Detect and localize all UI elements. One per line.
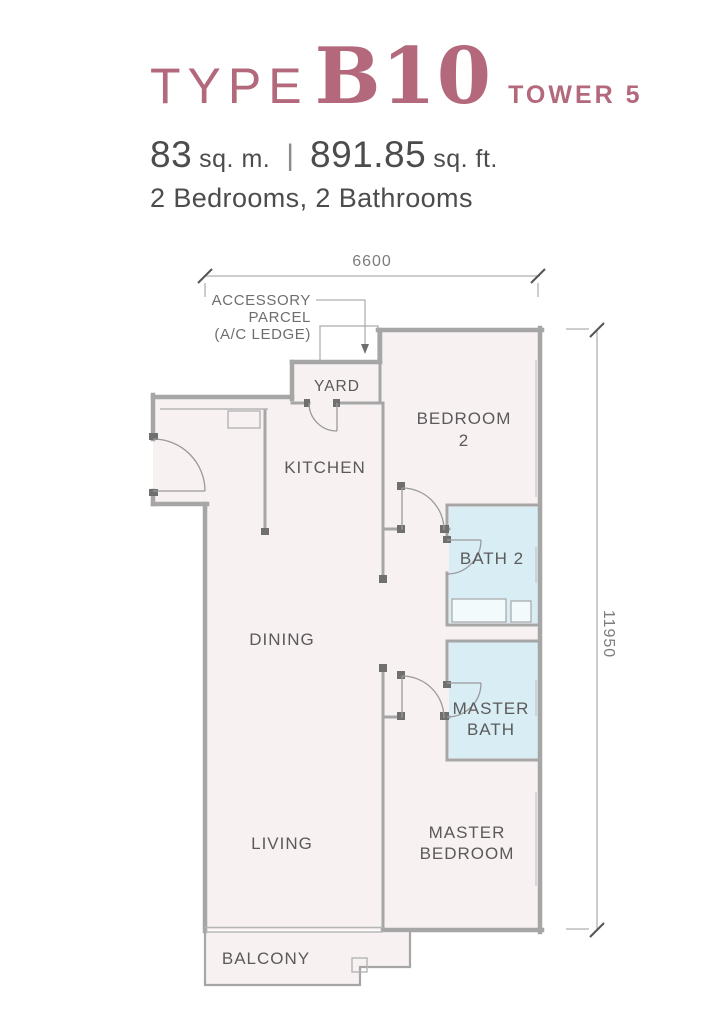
label-balcony: BALCONY xyxy=(222,949,310,968)
area-sqft-unit: sq. ft. xyxy=(433,145,498,173)
label-master-bedroom-line1: MASTER xyxy=(429,823,506,842)
bedroom-bathroom-config: 2 Bedrooms, 2 Bathrooms xyxy=(150,183,670,214)
label-kitchen: KITCHEN xyxy=(284,458,366,477)
annotation-line2: PARCEL xyxy=(248,309,311,326)
label-master-bath-line2: BATH xyxy=(467,720,515,739)
accessory-parcel-annotation: ACCESSORY PARCEL (A/C LEDGE) xyxy=(212,292,369,354)
label-living: LIVING xyxy=(251,834,313,853)
label-bedroom2-line1: BEDROOM xyxy=(417,409,512,428)
label-bath2: BATH 2 xyxy=(460,549,524,568)
dimension-width-label: 6600 xyxy=(352,253,392,270)
bath2-wc xyxy=(511,601,531,622)
label-master-bedroom-line2: BEDROOM xyxy=(420,844,515,863)
ac-ledge xyxy=(320,326,378,362)
label-yard: YARD xyxy=(314,378,360,395)
unit-code: B10 xyxy=(315,31,492,122)
area-separator: | xyxy=(286,139,294,172)
annotation-line3: (A/C LEDGE) xyxy=(214,326,311,343)
dimension-height: 11950 xyxy=(566,323,617,937)
area-sqm-value: 83 xyxy=(150,134,192,175)
label-master-bath-line1: MASTER xyxy=(453,699,530,718)
label-bedroom2-line2: 2 xyxy=(459,431,469,450)
header: TYPEB10TOWER 5 83sq. m.|891.85sq. ft. 2 … xyxy=(150,38,670,214)
annotation-line1: ACCESSORY xyxy=(212,292,311,309)
area-line: 83sq. m.|891.85sq. ft. xyxy=(150,136,670,173)
dimension-height-label: 11950 xyxy=(600,610,617,658)
bath2-vanity xyxy=(452,599,506,622)
area-sqm-unit: sq. m. xyxy=(199,145,270,173)
dimension-width: 6600 xyxy=(198,253,545,297)
area-sqft-value: 891.85 xyxy=(310,134,426,175)
floorplan-page: 6600 11950 ACCESSORY PARCEL (A/C LEDGE) … xyxy=(0,0,717,1024)
unit-title: TYPEB10TOWER 5 xyxy=(150,38,670,116)
label-dining: DINING xyxy=(249,630,315,649)
bath-fixtures xyxy=(452,599,531,622)
leader-arrowhead xyxy=(361,344,369,354)
type-label: TYPE xyxy=(150,58,309,114)
tower-label: TOWER 5 xyxy=(508,81,642,109)
